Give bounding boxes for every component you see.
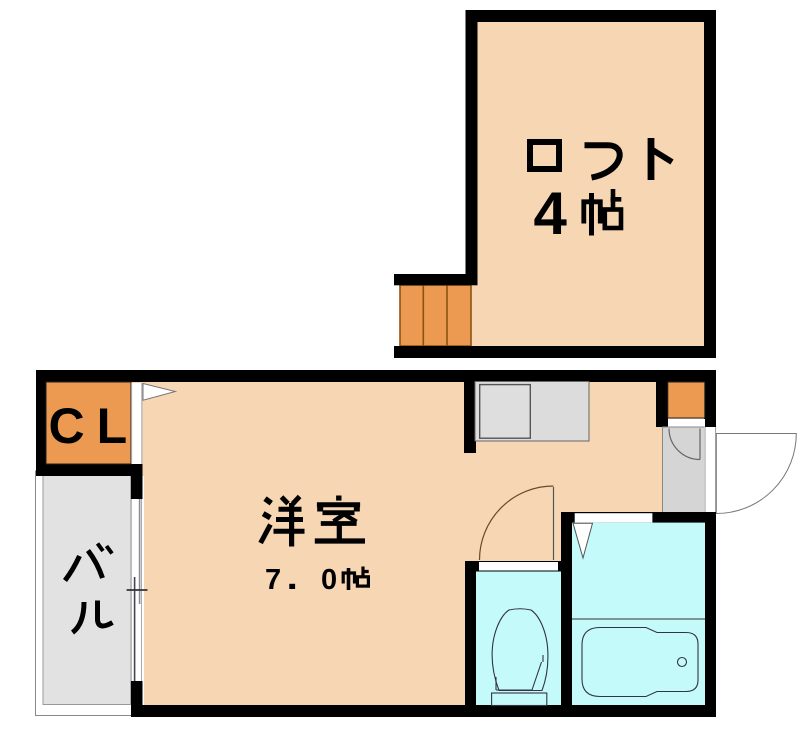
svg-text:4: 4 (534, 180, 568, 247)
svg-text:CL: CL (49, 398, 140, 454)
svg-text:0: 0 (321, 564, 337, 596)
svg-text:7: 7 (265, 564, 281, 596)
